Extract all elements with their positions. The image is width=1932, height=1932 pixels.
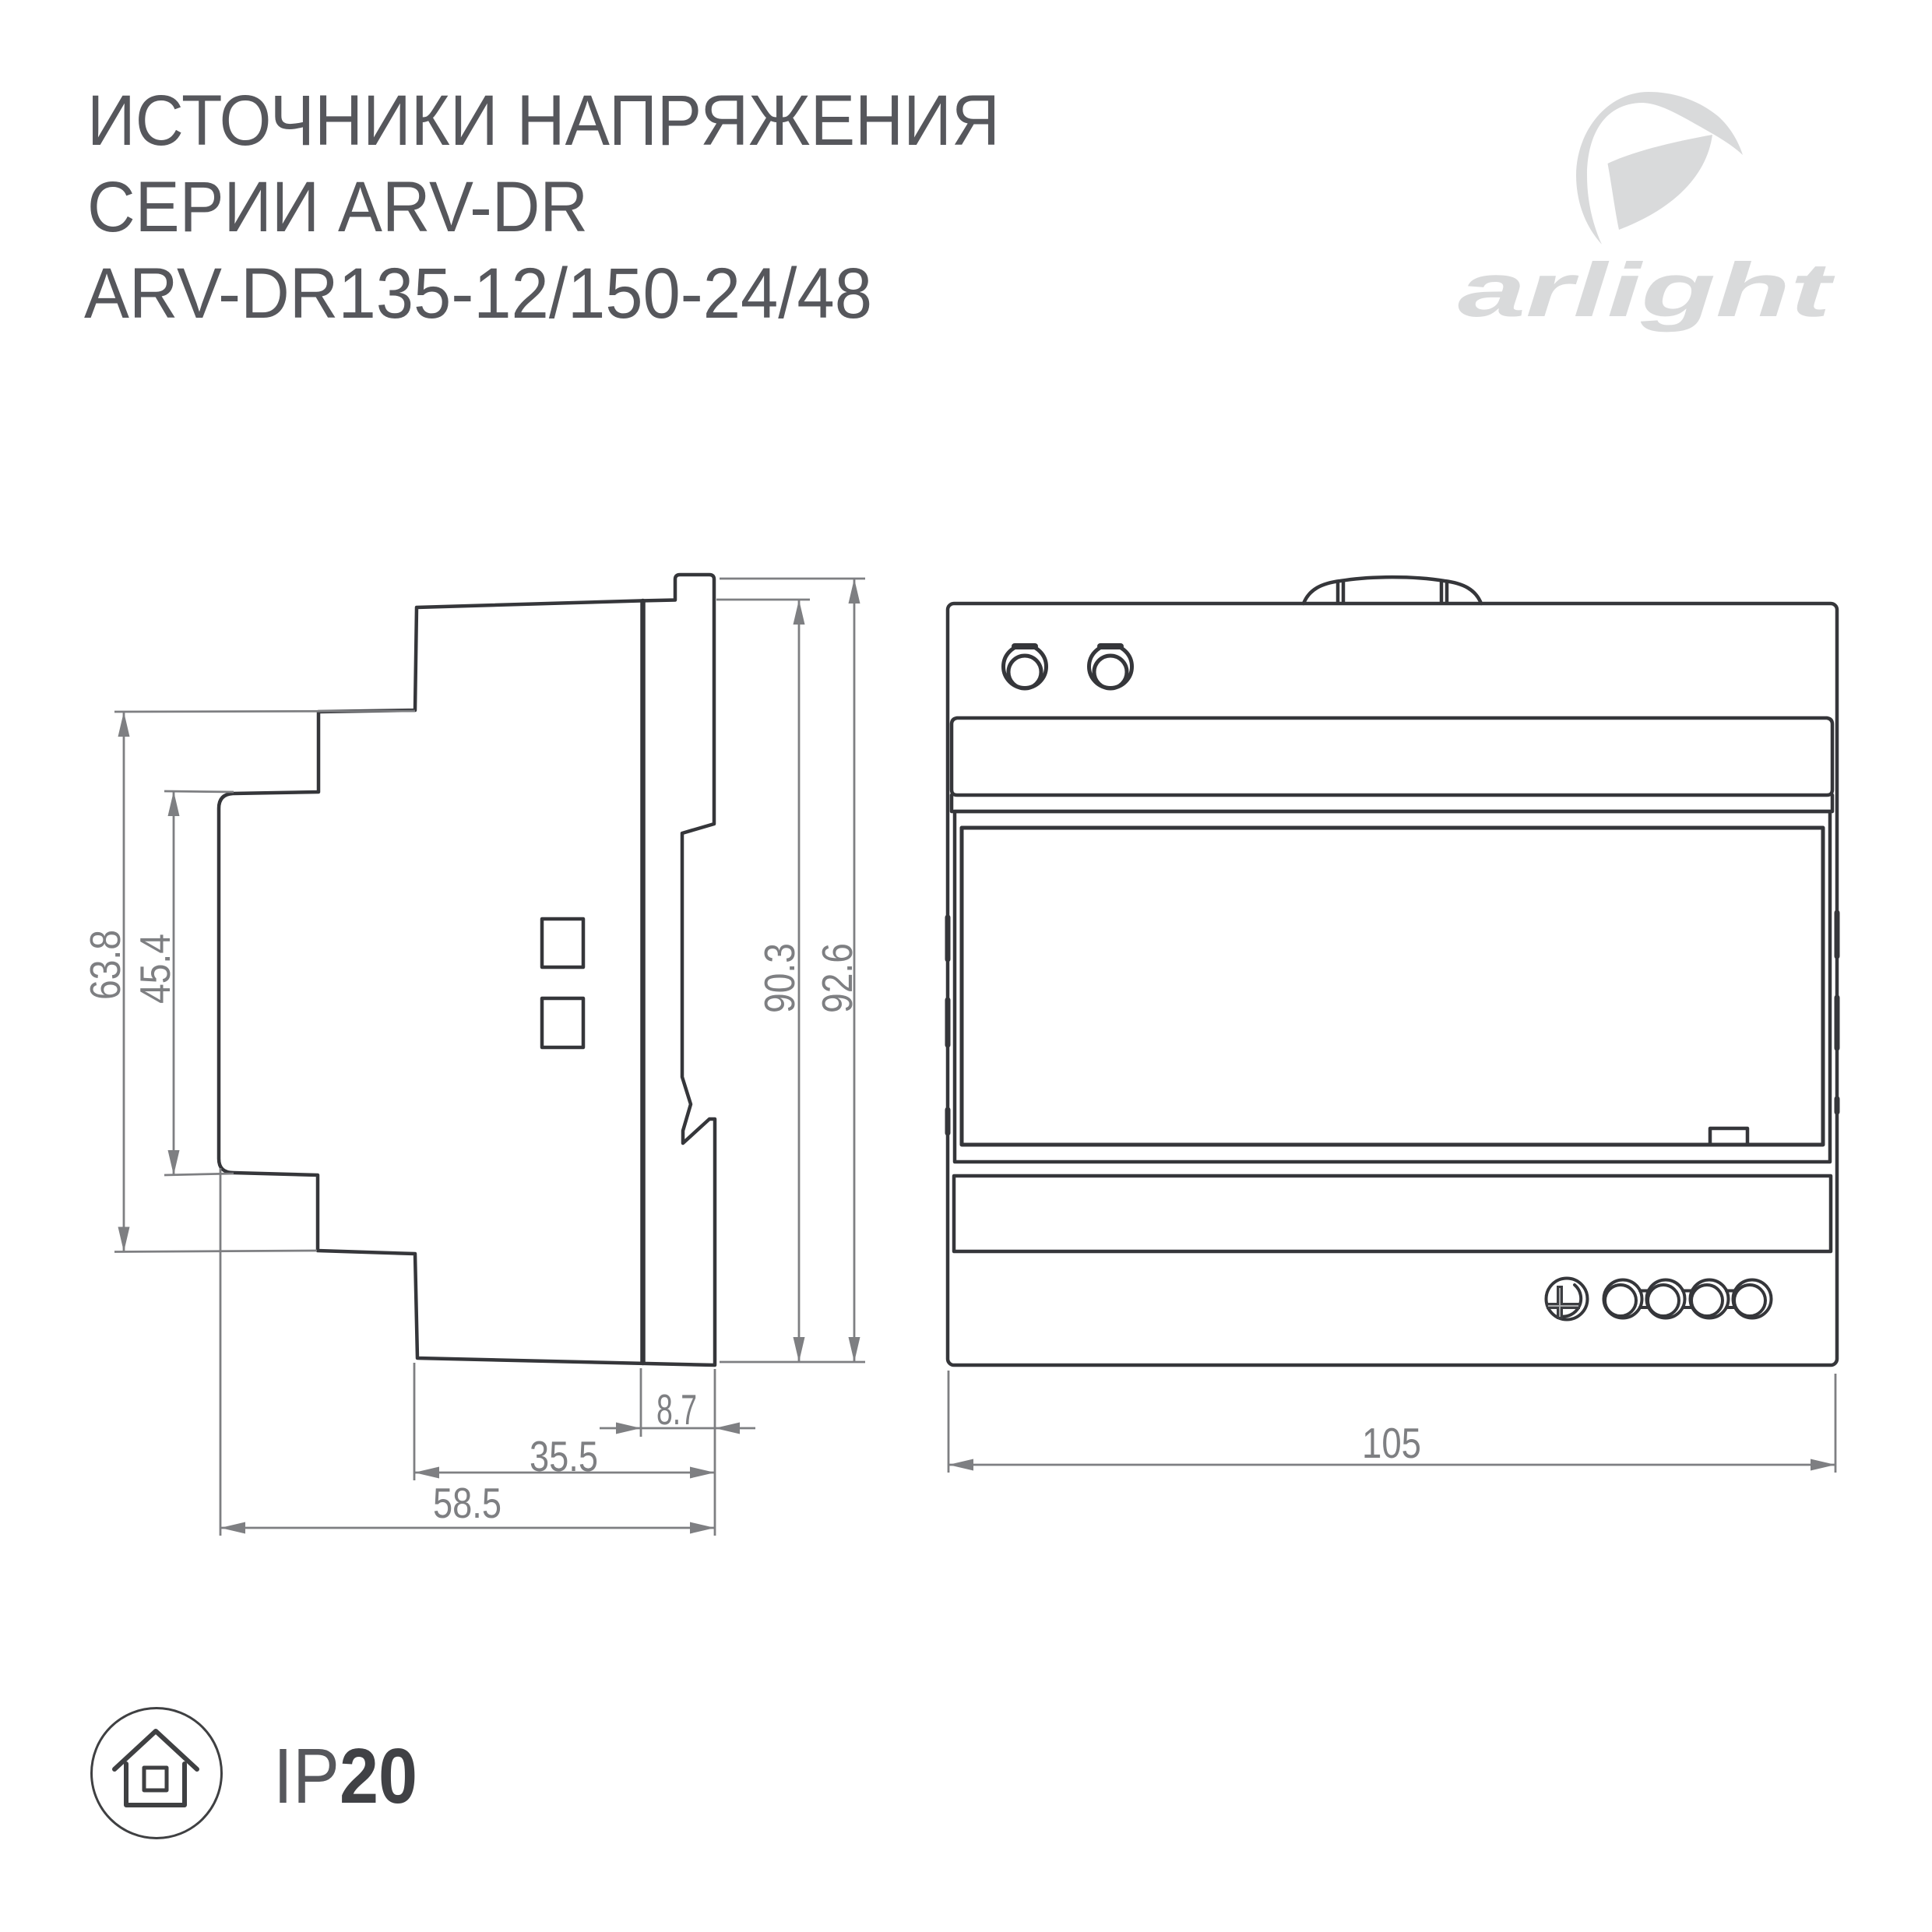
svg-text:IP20: IP20 (273, 1733, 417, 1820)
svg-text:92.6: 92.6 (813, 943, 861, 1013)
svg-text:ИСТОЧНИКИ НАПРЯЖЕНИЯ: ИСТОЧНИКИ НАПРЯЖЕНИЯ (87, 81, 1000, 160)
svg-text:90.3: 90.3 (755, 943, 804, 1013)
svg-text:45.4: 45.4 (131, 934, 179, 1004)
svg-text:105: 105 (1362, 1419, 1421, 1467)
svg-text:63.8: 63.8 (81, 930, 129, 1000)
svg-text:СЕРИИ ARV-DR: СЕРИИ ARV-DR (87, 167, 588, 247)
svg-text:58.5: 58.5 (433, 1479, 501, 1527)
svg-text:8.7: 8.7 (656, 1385, 697, 1434)
svg-text:35.5: 35.5 (530, 1432, 598, 1480)
svg-text:ARV-DR135-12/150-24/48: ARV-DR135-12/150-24/48 (84, 254, 872, 333)
svg-text:arlight: arlight (1458, 248, 1835, 333)
